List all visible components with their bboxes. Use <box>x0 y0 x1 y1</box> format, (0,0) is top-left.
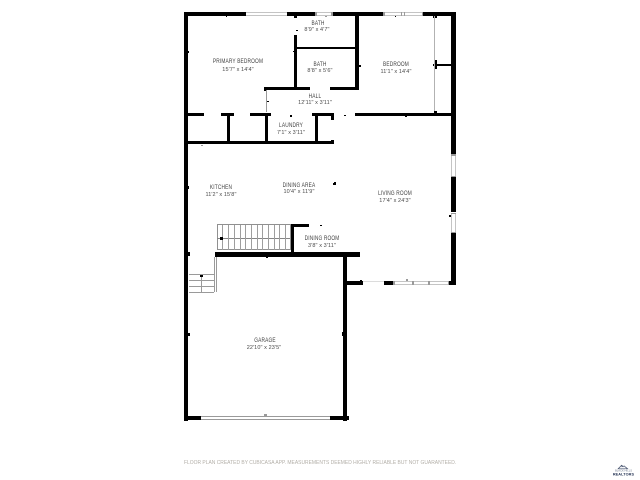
svg-text:REALTORS: REALTORS <box>613 473 635 477</box>
